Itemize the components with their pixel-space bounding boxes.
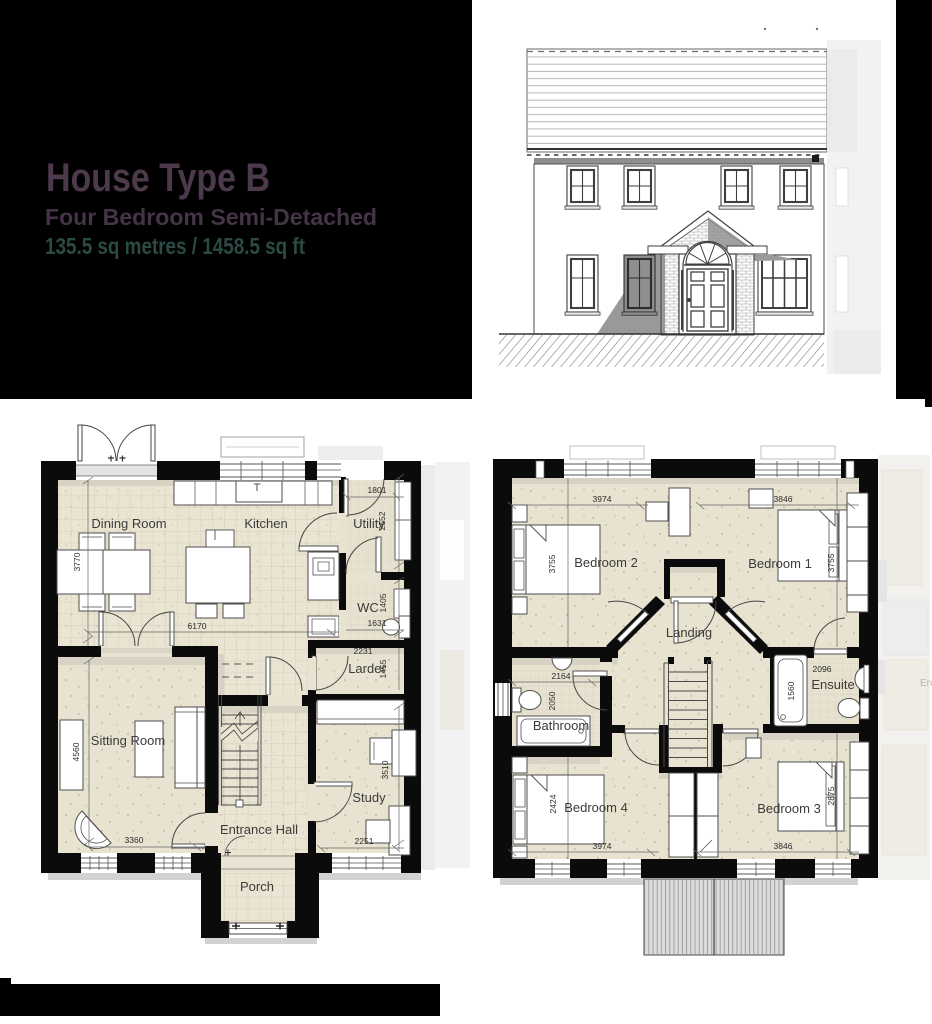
svg-text:2251: 2251 [355,836,374,846]
svg-text:135.5 sq metres / 1458.5 sq ft: 135.5 sq metres / 1458.5 sq ft [45,233,305,259]
svg-text:2050: 2050 [547,691,557,710]
svg-text:1455: 1455 [378,659,388,678]
svg-text:4560: 4560 [71,742,81,761]
svg-text:House Type B: House Type B [46,156,270,200]
svg-text:1405: 1405 [378,593,388,612]
svg-text:2164: 2164 [552,671,571,681]
svg-text:2875: 2875 [826,786,836,805]
svg-text:3974: 3974 [593,494,612,504]
svg-text:2424: 2424 [548,794,558,813]
svg-text:1801: 1801 [368,485,387,495]
svg-text:Sitting Room: Sitting Room [91,733,165,748]
svg-text:2096: 2096 [813,664,832,674]
svg-text:Entrance Hall: Entrance Hall [220,822,298,837]
svg-text:3755: 3755 [826,553,836,572]
svg-text:3770: 3770 [72,552,82,571]
svg-text:2552: 2552 [377,511,387,530]
svg-text:Dining Room: Dining Room [91,516,166,531]
svg-text:3846: 3846 [774,841,793,851]
svg-text:3510: 3510 [380,760,390,779]
svg-text:Study: Study [352,790,386,805]
svg-text:Porch: Porch [240,879,274,894]
svg-text:3974: 3974 [593,841,612,851]
svg-text:Bedroom 1: Bedroom 1 [748,556,812,571]
svg-text:Bedroom 3: Bedroom 3 [757,801,821,816]
svg-text:3846: 3846 [774,494,793,504]
svg-text:Landing: Landing [666,625,712,640]
svg-text:1631: 1631 [368,618,387,628]
svg-text:1560: 1560 [786,681,796,700]
svg-text:2231: 2231 [354,646,373,656]
svg-text:3755: 3755 [547,554,557,573]
svg-text:3360: 3360 [125,835,144,845]
svg-text:Bedroom 4: Bedroom 4 [564,800,628,815]
svg-text:Ens: Ens [920,678,932,689]
svg-text:Four Bedroom Semi-Detached: Four Bedroom Semi-Detached [45,204,377,230]
svg-text:Bedroom 2: Bedroom 2 [574,555,638,570]
svg-text:Bathroom: Bathroom [533,718,589,733]
svg-text:6170: 6170 [188,621,207,631]
svg-text:Ensuite: Ensuite [811,677,854,692]
svg-text:WC: WC [357,600,379,615]
svg-text:Kitchen: Kitchen [244,516,287,531]
